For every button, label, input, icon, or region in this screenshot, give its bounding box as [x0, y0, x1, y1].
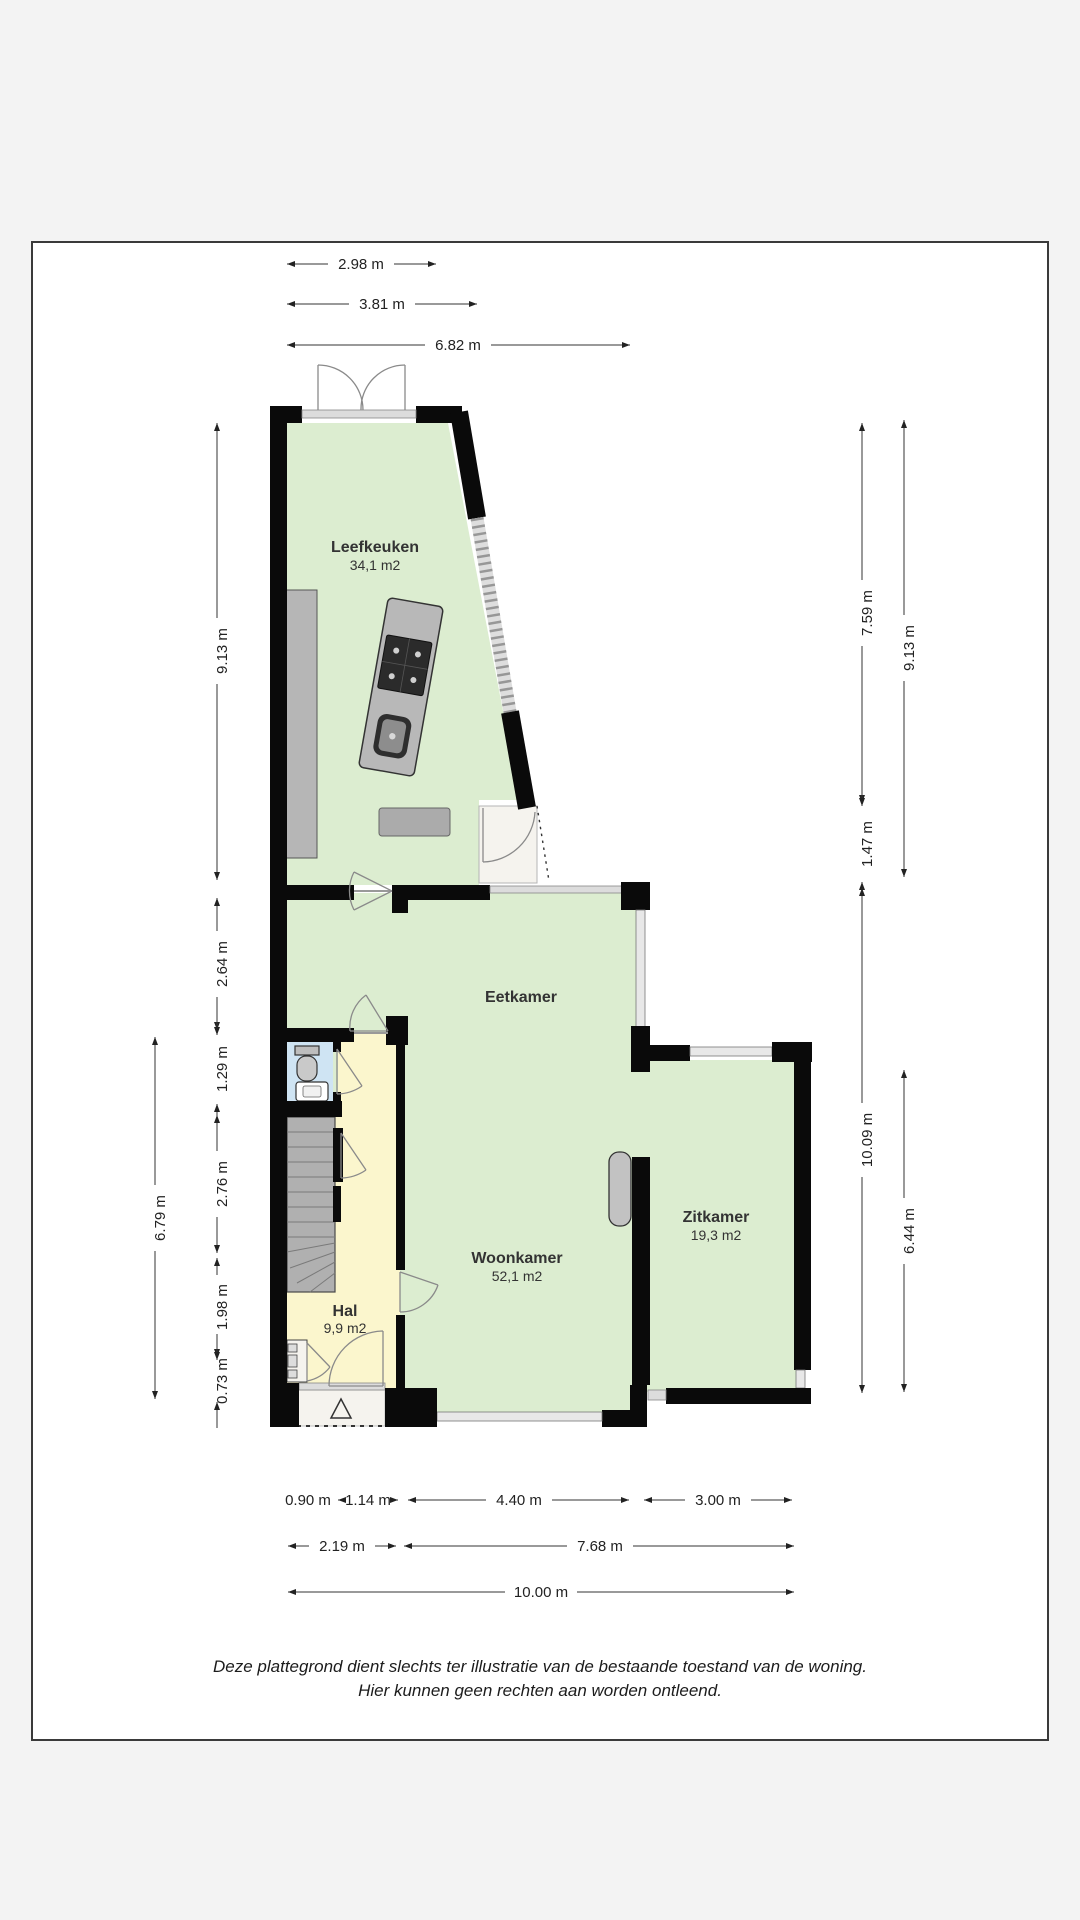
- dim-right-644: 6.44 m: [901, 1208, 918, 1254]
- wall-left-bottom: [270, 1383, 299, 1427]
- front-entrance-porch: [297, 1383, 385, 1426]
- floorplan-svg: Leefkeuken 34,1 m2 Eetkamer Woonkamer 52…: [0, 0, 1080, 1920]
- label-hal: Hal: [333, 1303, 358, 1320]
- wall-divider-right: [392, 885, 490, 900]
- dim-left-198: 1.98 m: [214, 1284, 231, 1330]
- wall-hal-east-upper: [396, 1042, 405, 1270]
- label-leefkeuken-area: 34,1 m2: [350, 557, 401, 573]
- wall-zitkamer-t-arm: [650, 1045, 690, 1061]
- wall-woonkamer-se-2: [602, 1410, 647, 1427]
- wall-woonkamer-zitkamer: [632, 1157, 650, 1385]
- wall-zitkamer-south: [666, 1388, 811, 1404]
- label-leefkeuken: Leefkeuken: [331, 539, 419, 556]
- kitchen-bench: [379, 808, 450, 836]
- wall-divider-left: [272, 885, 354, 900]
- wall-ne-corner: [621, 882, 650, 910]
- dim-right-913: 9.13 m: [901, 625, 918, 671]
- dim-left-276: 2.76 m: [214, 1161, 231, 1207]
- dim-top-2: 3.81 m: [359, 296, 405, 313]
- wall-stair-stub-2: [333, 1186, 341, 1222]
- label-woonkamer: Woonkamer: [471, 1250, 562, 1267]
- toilet-tank: [295, 1046, 319, 1055]
- dim-bottom-768: 7.68 m: [577, 1538, 623, 1555]
- wall-zitkamer-ne-corner: [772, 1042, 812, 1062]
- wall-left: [270, 406, 287, 1427]
- dim-right-1009: 10.09 m: [859, 1113, 876, 1167]
- dim-bottom-090: 0.90 m: [285, 1492, 331, 1509]
- window-zitkamer-north: [690, 1047, 772, 1056]
- dim-left-073: 0.73 m: [214, 1358, 231, 1404]
- wall-wc-south: [272, 1101, 342, 1117]
- dim-left-264: 2.64 m: [214, 941, 231, 987]
- label-eetkamer: Eetkamer: [485, 989, 557, 1006]
- wall-hal-east-lower: [396, 1315, 405, 1388]
- dim-bottom-440: 4.40 m: [496, 1492, 542, 1509]
- threshold-zitkamer: [648, 1390, 666, 1400]
- floorplan-page: Leefkeuken 34,1 m2 Eetkamer Woonkamer 52…: [0, 0, 1080, 1920]
- dim-left-913: 9.13 m: [214, 628, 231, 674]
- sill-eetkamer-top: [490, 886, 623, 893]
- wall-zitkamer-t-vertical: [631, 1026, 650, 1072]
- wall-divider-stub: [392, 900, 408, 913]
- label-zitkamer-area: 19,3 m2: [691, 1227, 742, 1243]
- dim-bottom-300: 3.00 m: [695, 1492, 741, 1509]
- dim-top-1: 2.98 m: [338, 256, 384, 273]
- label-woonkamer-area: 52,1 m2: [492, 1268, 543, 1284]
- window-woonkamer-south: [437, 1412, 602, 1421]
- wall-zitkamer-east: [794, 1062, 811, 1370]
- window-zitkamer-se: [796, 1370, 805, 1388]
- room-zitkamer-floor: [641, 1060, 802, 1392]
- wall-hal-north-stub: [386, 1016, 408, 1045]
- dim-right-147: 1.47 m: [859, 821, 876, 867]
- dim-bottom-219: 2.19 m: [319, 1538, 365, 1555]
- disclaimer-line-1: Deze plattegrond dient slechts ter illus…: [213, 1657, 867, 1676]
- wall-hal-north: [272, 1028, 354, 1042]
- wall-top-left: [270, 406, 302, 423]
- dim-bottom-1000: 10.00 m: [514, 1584, 568, 1601]
- meter-closet: [287, 1340, 307, 1382]
- dim-left-129: 1.29 m: [214, 1046, 231, 1092]
- radiator: [609, 1152, 631, 1226]
- stairs: [287, 1117, 335, 1292]
- dim-left-679: 6.79 m: [152, 1195, 169, 1241]
- dim-bottom-114: 1.14 m: [345, 1492, 391, 1509]
- label-zitkamer: Zitkamer: [683, 1209, 750, 1226]
- wall-woonkamer-sw: [385, 1388, 437, 1427]
- label-hal-area: 9,9 m2: [324, 1320, 367, 1336]
- dim-top-3: 6.82 m: [435, 337, 481, 354]
- toilet-bowl: [297, 1056, 317, 1081]
- french-door-sill: [302, 410, 416, 418]
- kitchen-counter: [286, 590, 317, 858]
- window-eetkamer-east: [636, 910, 645, 1028]
- disclaimer-line-2: Hier kunnen geen rechten aan worden ontl…: [358, 1681, 722, 1700]
- dim-right-759: 7.59 m: [859, 590, 876, 636]
